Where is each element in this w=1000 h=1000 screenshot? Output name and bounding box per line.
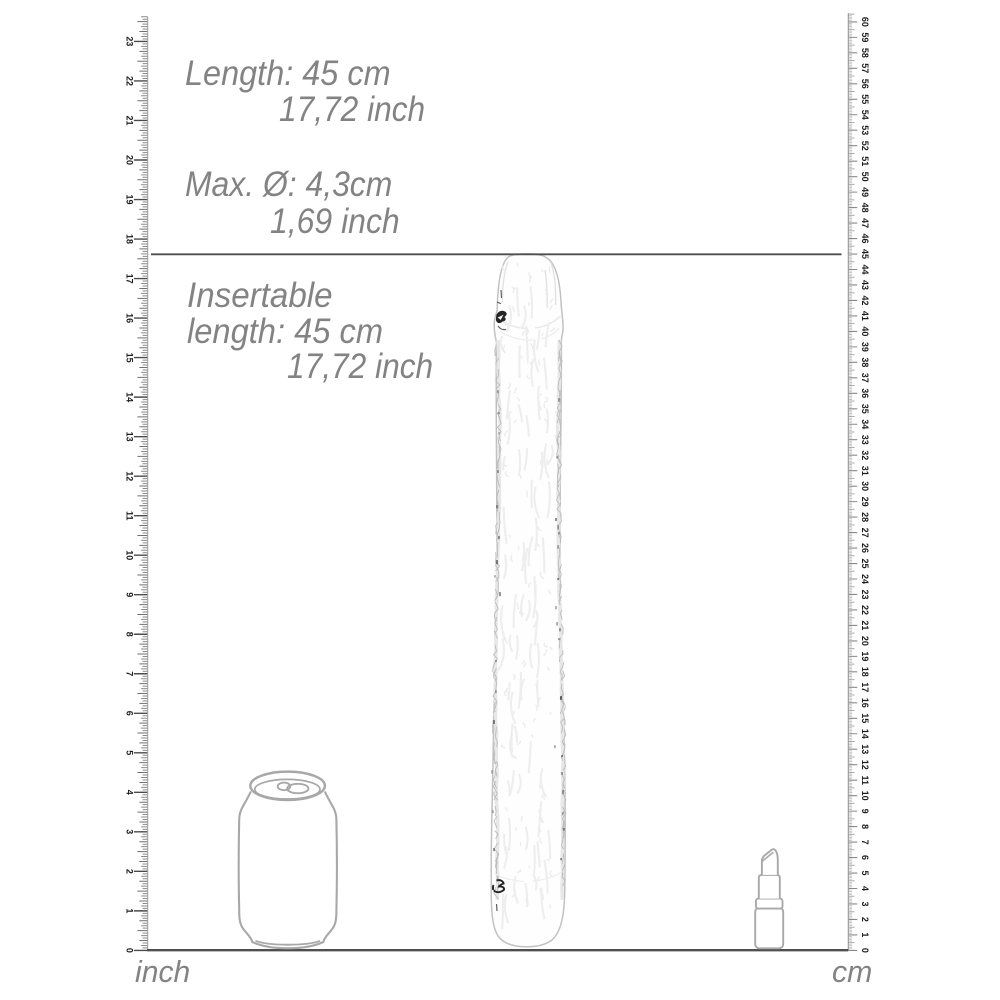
svg-text:39: 39 [860,342,870,352]
svg-text:19: 19 [860,651,870,661]
svg-text:22: 22 [860,605,870,615]
svg-text:16: 16 [860,698,870,708]
svg-text:46: 46 [860,233,870,243]
svg-text:58: 58 [860,48,870,58]
svg-text:4: 4 [124,790,134,795]
svg-text:49: 49 [860,187,870,197]
svg-text:10: 10 [860,791,870,801]
svg-text:17: 17 [860,682,870,692]
svg-text:34: 34 [860,419,870,429]
svg-text:54: 54 [860,110,870,120]
svg-text:60: 60 [860,17,870,27]
svg-text:16: 16 [124,313,134,323]
svg-text:18: 18 [860,667,870,677]
svg-text:4: 4 [860,886,870,891]
svg-text:42: 42 [860,295,870,305]
svg-text:35: 35 [860,404,870,414]
svg-text:23: 23 [860,589,870,599]
svg-text:20: 20 [860,636,870,646]
svg-text:14: 14 [124,392,134,402]
svg-text:21: 21 [860,620,870,630]
svg-text:30: 30 [860,481,870,491]
svg-text:2: 2 [124,869,134,874]
svg-text:28: 28 [860,512,870,522]
svg-text:31: 31 [860,466,870,476]
svg-text:33: 33 [860,435,870,445]
svg-text:8: 8 [124,632,134,637]
svg-text:55: 55 [860,94,870,104]
svg-text:6: 6 [124,711,134,716]
svg-text:24: 24 [860,574,870,584]
svg-text:11: 11 [860,775,870,785]
svg-text:45: 45 [860,249,870,259]
svg-text:52: 52 [860,141,870,151]
svg-text:2: 2 [860,917,870,922]
svg-text:7: 7 [860,840,870,845]
svg-text:3: 3 [860,901,870,906]
svg-text:13: 13 [860,744,870,754]
svg-text:23: 23 [124,36,134,46]
svg-text:57: 57 [860,63,870,73]
svg-text:21: 21 [124,115,134,125]
svg-text:6: 6 [860,855,870,860]
svg-text:36: 36 [860,388,870,398]
svg-text:0: 0 [124,948,134,953]
svg-text:9: 9 [124,592,134,597]
svg-text:8: 8 [860,824,870,829]
svg-text:40: 40 [860,326,870,336]
svg-text:48: 48 [860,203,870,213]
svg-text:38: 38 [860,357,870,367]
svg-text:7: 7 [124,671,134,676]
svg-text:29: 29 [860,497,870,507]
svg-text:9: 9 [860,809,870,814]
svg-text:11: 11 [124,511,134,521]
svg-text:12: 12 [124,471,134,481]
svg-text:44: 44 [860,264,870,274]
svg-text:15: 15 [860,713,870,723]
svg-text:41: 41 [860,311,870,321]
svg-text:18: 18 [124,234,134,244]
svg-text:51: 51 [860,156,870,166]
svg-text:14: 14 [860,729,870,739]
svg-text:32: 32 [860,450,870,460]
svg-text:20: 20 [124,155,134,165]
svg-text:10: 10 [124,550,134,560]
svg-text:43: 43 [860,280,870,290]
svg-text:5: 5 [860,870,870,875]
svg-text:5: 5 [124,750,134,755]
svg-text:1: 1 [124,908,134,913]
svg-text:59: 59 [860,32,870,42]
svg-text:50: 50 [860,172,870,182]
svg-text:19: 19 [124,194,134,204]
svg-text:0: 0 [860,948,870,953]
svg-text:13: 13 [124,432,134,442]
svg-text:56: 56 [860,79,870,89]
svg-text:3: 3 [124,829,134,834]
svg-text:25: 25 [860,558,870,568]
svg-text:17: 17 [124,274,134,284]
svg-text:37: 37 [860,373,870,383]
svg-text:47: 47 [860,218,870,228]
svg-text:1: 1 [860,932,870,937]
svg-text:15: 15 [124,353,134,363]
svg-text:27: 27 [860,528,870,538]
svg-text:12: 12 [860,760,870,770]
svg-text:53: 53 [860,125,870,135]
svg-text:26: 26 [860,543,870,553]
svg-text:22: 22 [124,76,134,86]
